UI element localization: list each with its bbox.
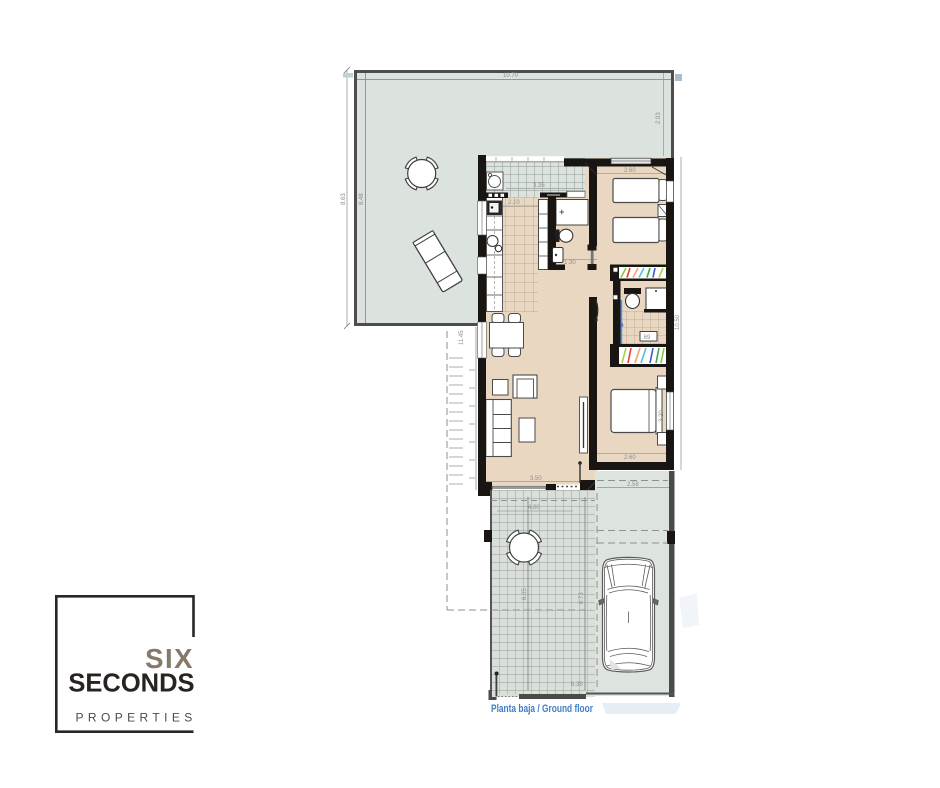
svg-text:2.10: 2.10 xyxy=(508,200,520,206)
svg-text:6.35: 6.35 xyxy=(571,682,583,688)
svg-text:PROPERTIES: PROPERTIES xyxy=(76,711,197,725)
svg-text:2.58: 2.58 xyxy=(627,482,639,488)
svg-text:8.63: 8.63 xyxy=(341,193,347,205)
svg-text:Planta baja / Ground floor: Planta baja / Ground floor xyxy=(491,703,594,715)
svg-text:10.70: 10.70 xyxy=(503,73,519,79)
svg-text:6.73: 6.73 xyxy=(579,592,585,604)
svg-text:3.20: 3.20 xyxy=(659,410,665,422)
svg-text:.69: .69 xyxy=(642,335,651,341)
svg-text:3.35: 3.35 xyxy=(533,183,545,189)
svg-text:2.93: 2.93 xyxy=(656,112,662,124)
svg-text:2.60: 2.60 xyxy=(624,168,636,174)
svg-text:11.45: 11.45 xyxy=(459,330,465,345)
svg-text:SECONDS: SECONDS xyxy=(68,670,194,698)
svg-text:4.00: 4.00 xyxy=(528,505,540,511)
svg-text:1.30: 1.30 xyxy=(564,260,576,266)
svg-text:10.50: 10.50 xyxy=(675,314,681,330)
svg-text:3.50: 3.50 xyxy=(530,476,542,482)
svg-text:6.05: 6.05 xyxy=(522,588,528,600)
svg-text:2.60: 2.60 xyxy=(624,455,636,461)
svg-text:8.48: 8.48 xyxy=(359,193,365,205)
